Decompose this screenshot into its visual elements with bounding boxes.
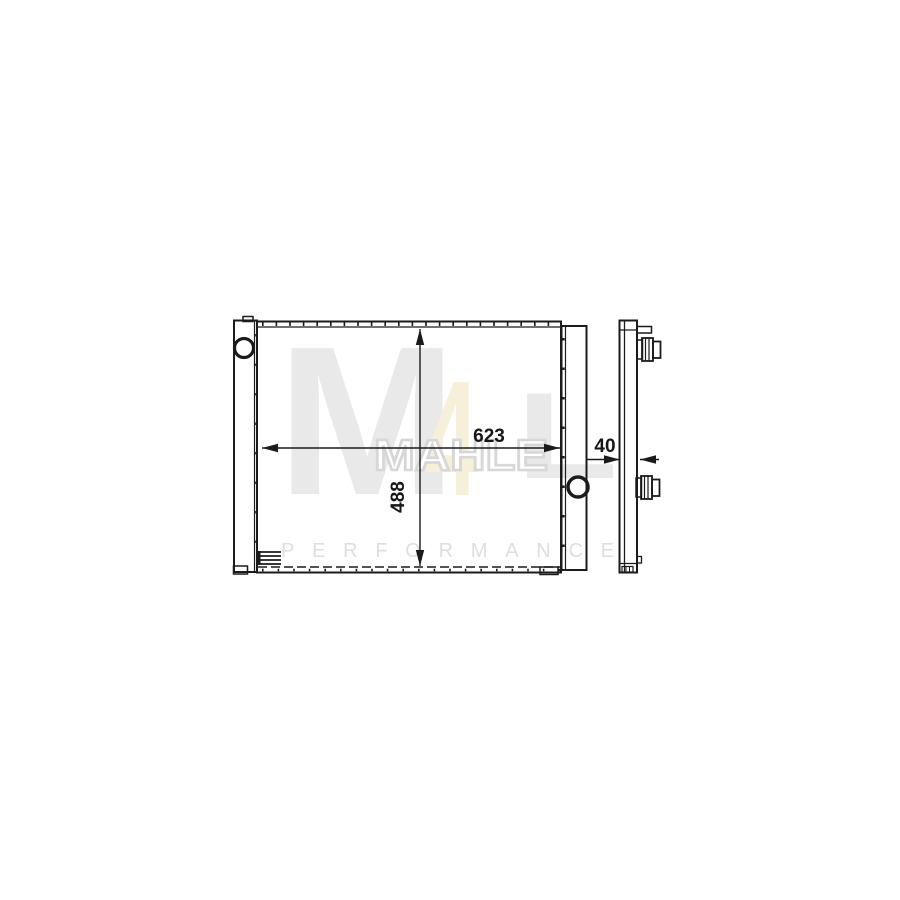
depth-dimension-label: 40 <box>594 436 615 457</box>
side-view-top-tab <box>637 327 652 334</box>
arrow-left-icon <box>640 455 656 463</box>
arrow-left-icon <box>262 444 278 452</box>
left-tank-top-tab <box>243 317 253 322</box>
watermark-brand-text: MAHLE <box>374 431 548 480</box>
height-dimension-label: 488 <box>388 481 409 513</box>
width-dimension-label: 623 <box>473 426 505 447</box>
top-connector <box>637 338 661 361</box>
depth-dimension: 40 <box>587 436 659 464</box>
radiator-drawing: M 4 L MAHLE PERFORMANCE <box>0 0 900 900</box>
side-view <box>620 321 661 573</box>
middle-connector <box>636 476 660 499</box>
technical-drawing-page: M 4 L MAHLE PERFORMANCE <box>0 0 900 900</box>
watermark-tagline-text: PERFORMANCE <box>281 540 614 562</box>
watermark: M 4 L MAHLE PERFORMANCE <box>277 302 618 562</box>
left-port-circle <box>235 339 254 358</box>
cooling-fins <box>257 551 281 565</box>
side-view-bottom-detail <box>622 567 633 573</box>
side-view-body <box>620 321 638 573</box>
